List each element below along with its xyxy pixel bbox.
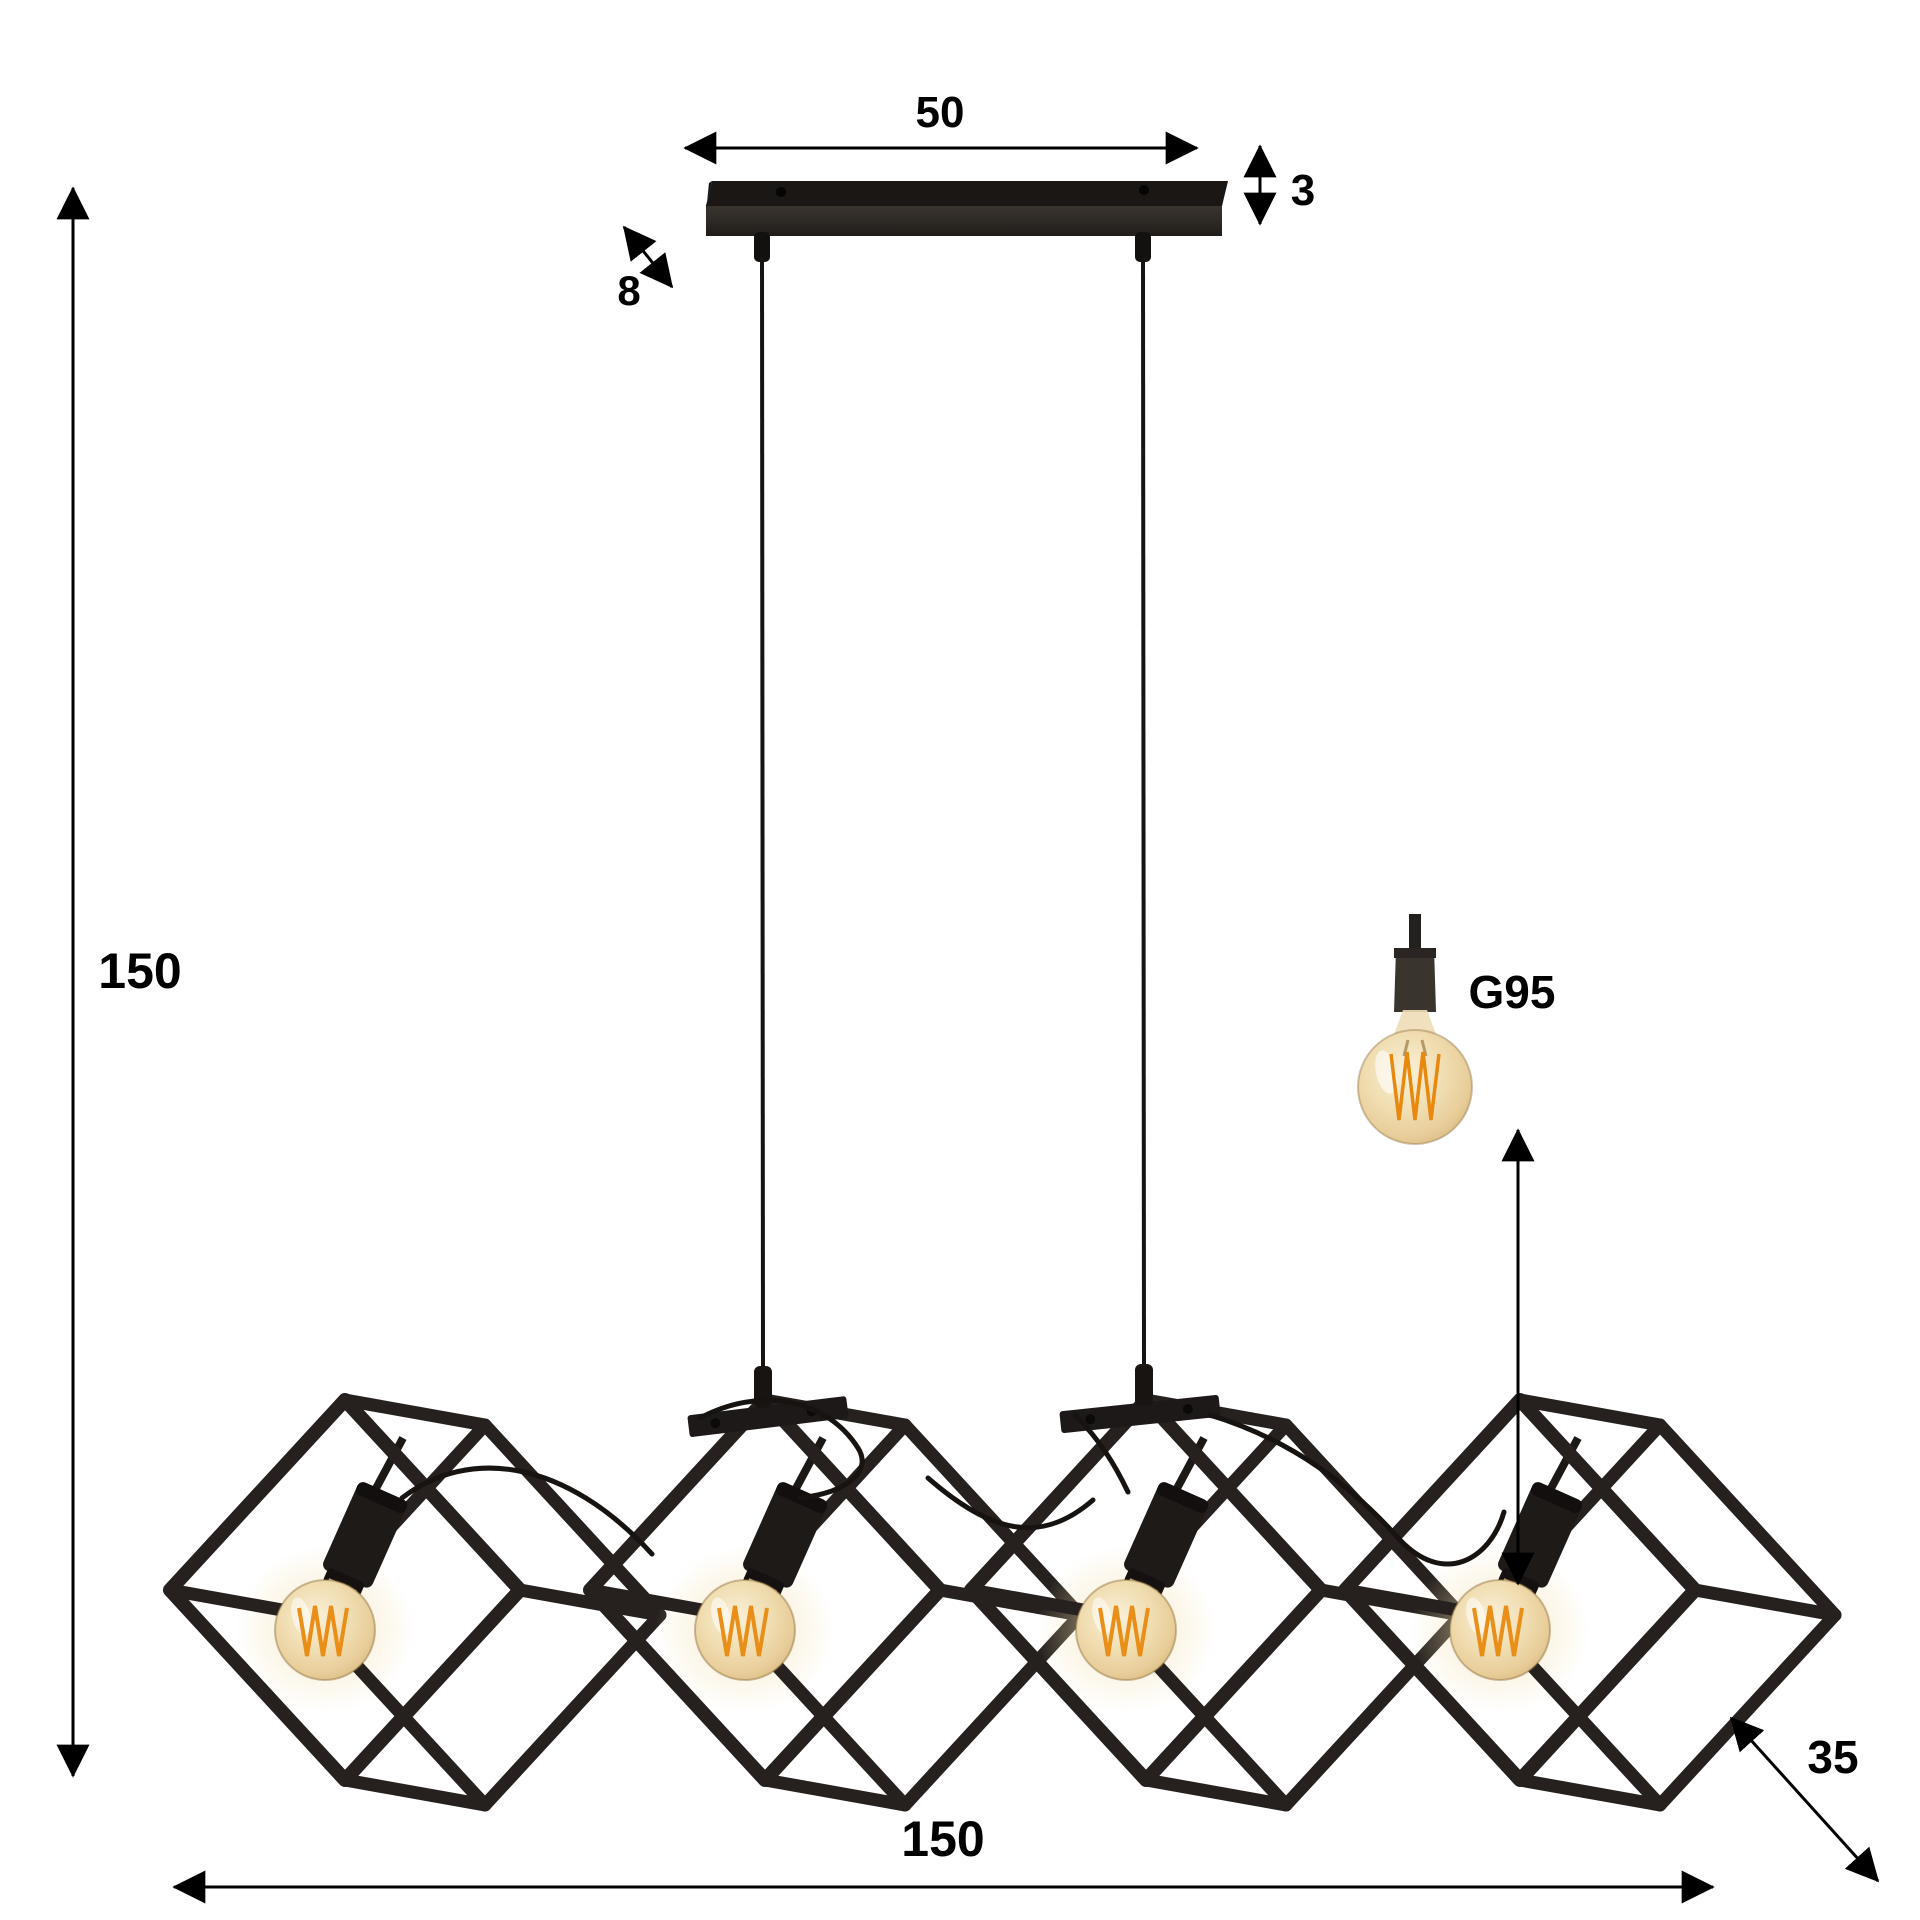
ceiling-mount-bar bbox=[706, 181, 1228, 262]
suspension-cable-left bbox=[762, 258, 763, 1368]
cube3-cable-connector bbox=[1135, 1364, 1153, 1406]
dimension-total-width-label: 150 bbox=[901, 1811, 984, 1867]
cable-gland-left bbox=[754, 232, 770, 262]
cube-shade-4 bbox=[1345, 1400, 1835, 1805]
lamp-dimension-diagram: 50 3 8 150 150 35 G95 bbox=[0, 0, 1920, 1920]
dimension-mount-depth: 8 bbox=[617, 227, 672, 314]
dimension-total-width: 150 bbox=[174, 1811, 1713, 1887]
mount-screw-right bbox=[1139, 185, 1149, 195]
diagram-canvas: 50 3 8 150 150 35 G95 bbox=[0, 0, 1920, 1920]
dimension-mount-thickness: 3 bbox=[1260, 146, 1315, 224]
g95-bulb-illustration bbox=[1358, 914, 1472, 1144]
dimension-hanging-height-label: 150 bbox=[98, 943, 181, 999]
cube-shade-1 bbox=[170, 1400, 660, 1805]
bulb-type-label: G95 bbox=[1469, 966, 1556, 1018]
dimension-mount-thickness-label: 3 bbox=[1291, 166, 1315, 215]
dimension-hanging-height: 150 bbox=[73, 188, 182, 1776]
dimension-mount-width-label: 50 bbox=[916, 88, 965, 137]
dimension-mount-depth-label: 8 bbox=[617, 267, 640, 314]
cable-gland-right bbox=[1135, 232, 1151, 262]
g95-bulb-globe bbox=[1358, 1030, 1472, 1144]
mount-bar-front-face bbox=[706, 206, 1222, 236]
mount-screw-left bbox=[776, 187, 786, 197]
g95-socket-band bbox=[1394, 948, 1436, 958]
dimension-mount-width: 50 bbox=[685, 88, 1197, 148]
dimension-cube-depth-label: 35 bbox=[1807, 1731, 1858, 1783]
g95-socket-stem bbox=[1409, 914, 1421, 948]
dimension-cube-depth: 35 bbox=[1731, 1718, 1878, 1881]
suspension-cable-right bbox=[1143, 258, 1144, 1366]
